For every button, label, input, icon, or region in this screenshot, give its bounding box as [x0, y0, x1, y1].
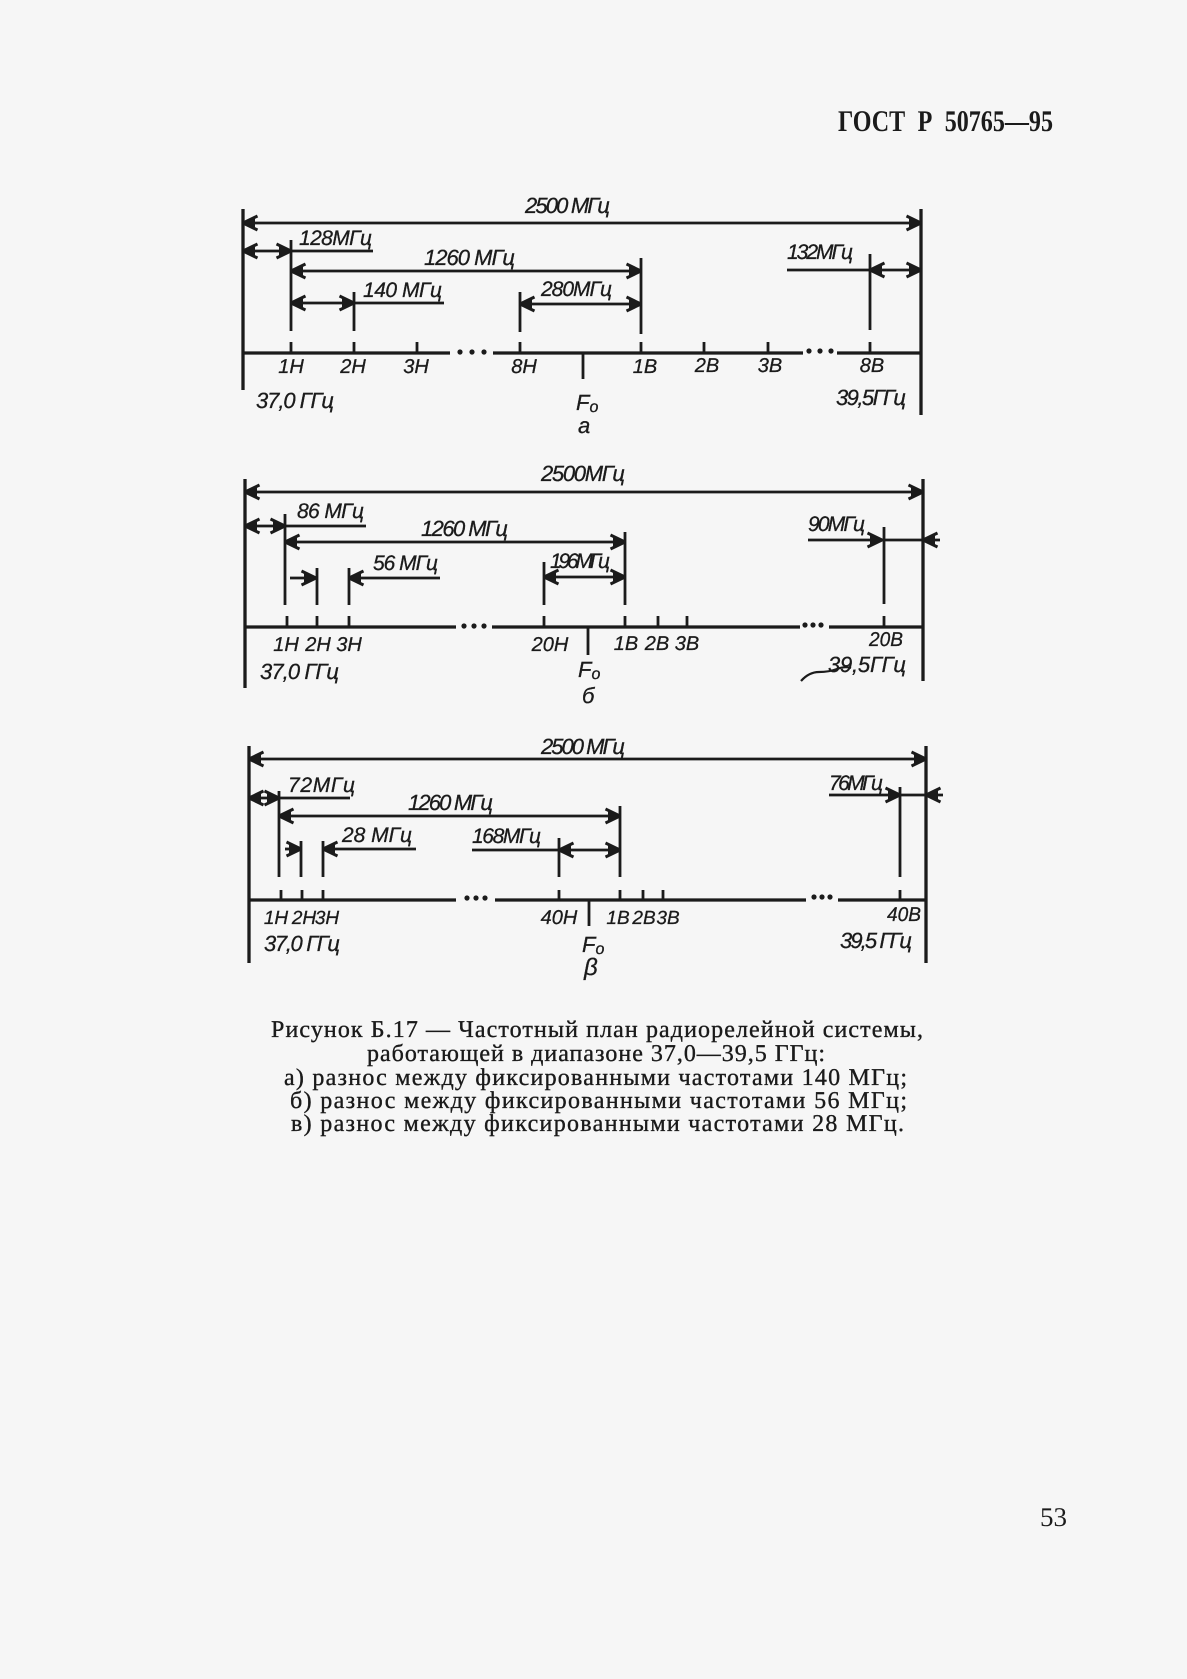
svg-text:2В: 2В	[631, 908, 656, 929]
svg-text:37,0 ГГц: 37,0 ГГц	[260, 659, 339, 684]
svg-text:8В: 8В	[860, 355, 884, 377]
svg-text:1Н: 1Н	[264, 908, 289, 929]
svg-text:8Н: 8Н	[511, 356, 537, 378]
svg-text:3Н: 3Н	[315, 908, 340, 929]
svg-text:β: β	[583, 954, 598, 981]
svg-text:40Н: 40Н	[541, 907, 578, 929]
svg-text:3В: 3В	[758, 355, 782, 377]
svg-text:3Н: 3Н	[336, 634, 362, 656]
svg-text:90МГц: 90МГц	[808, 513, 865, 536]
svg-text:39,5ГГц: 39,5ГГц	[836, 385, 906, 410]
svg-text:56 МГц: 56 МГц	[373, 552, 438, 575]
svg-text:в) разнос между фиксированными: в) разнос между фиксированными частотами…	[291, 1111, 904, 1137]
svg-text:1Н: 1Н	[278, 356, 304, 378]
svg-text:работающей в диапазоне 37,0—39: работающей в диапазоне 37,0—39,5 ГГц:	[367, 1041, 825, 1067]
svg-text:86 МГц: 86 МГц	[297, 500, 364, 523]
svg-text:1В: 1В	[606, 908, 630, 929]
svg-text:3В: 3В	[675, 633, 699, 655]
svg-text:2500МГц: 2500МГц	[540, 461, 625, 486]
svg-text:3Н: 3Н	[403, 356, 429, 378]
svg-text:1260 МГц: 1260 МГц	[421, 516, 508, 541]
svg-text:76МГц: 76МГц	[829, 772, 883, 795]
svg-text:2Н: 2Н	[339, 356, 366, 378]
svg-text:2500 МГц: 2500 МГц	[540, 734, 625, 759]
svg-text:3В: 3В	[656, 908, 680, 929]
svg-text:140 МГц: 140 МГц	[363, 279, 442, 302]
svg-text:2Н: 2Н	[304, 634, 331, 656]
svg-text:2Н: 2Н	[291, 908, 317, 929]
svg-text:37,0 ГГц: 37,0 ГГц	[256, 388, 334, 413]
svg-text:а: а	[578, 413, 590, 438]
svg-text:1В: 1В	[614, 633, 638, 655]
svg-text:53: 53	[1040, 1502, 1067, 1532]
svg-text:1260 МГц: 1260 МГц	[408, 790, 493, 815]
svg-text:1260 МГц: 1260 МГц	[424, 245, 515, 270]
svg-text:1В: 1В	[633, 356, 657, 378]
svg-text:40В: 40В	[887, 904, 921, 926]
svg-text:ГОСТ Р 50765—95: ГОСТ Р 50765—95	[838, 105, 1053, 138]
svg-text:196МГц: 196МГц	[550, 550, 610, 573]
svg-text:2В: 2В	[694, 355, 719, 377]
svg-text:2500 МГц: 2500 МГц	[524, 193, 610, 218]
svg-text:37,0 ГГц: 37,0 ГГц	[264, 931, 340, 956]
svg-text:Рисунок Б.17 — Частотный план: Рисунок Б.17 — Частотный план радиорелей…	[271, 1017, 923, 1043]
svg-text:39,5ГГц: 39,5ГГц	[828, 652, 906, 677]
svg-text:72МГц: 72МГц	[288, 774, 355, 797]
svg-text:2В: 2В	[644, 633, 669, 655]
svg-text:39,5 ГГц: 39,5 ГГц	[840, 928, 912, 953]
svg-text:132МГц: 132МГц	[787, 241, 853, 264]
svg-text:28 МГц: 28 МГц	[341, 824, 412, 847]
svg-text:168МГц: 168МГц	[472, 825, 541, 848]
svg-text:20В: 20В	[868, 629, 903, 651]
svg-text:128МГц: 128МГц	[299, 227, 372, 250]
svg-text:20Н: 20Н	[531, 634, 569, 656]
svg-text:1Н: 1Н	[273, 634, 299, 656]
svg-text:б: б	[582, 683, 596, 708]
svg-text:280МГц: 280МГц	[540, 278, 612, 301]
